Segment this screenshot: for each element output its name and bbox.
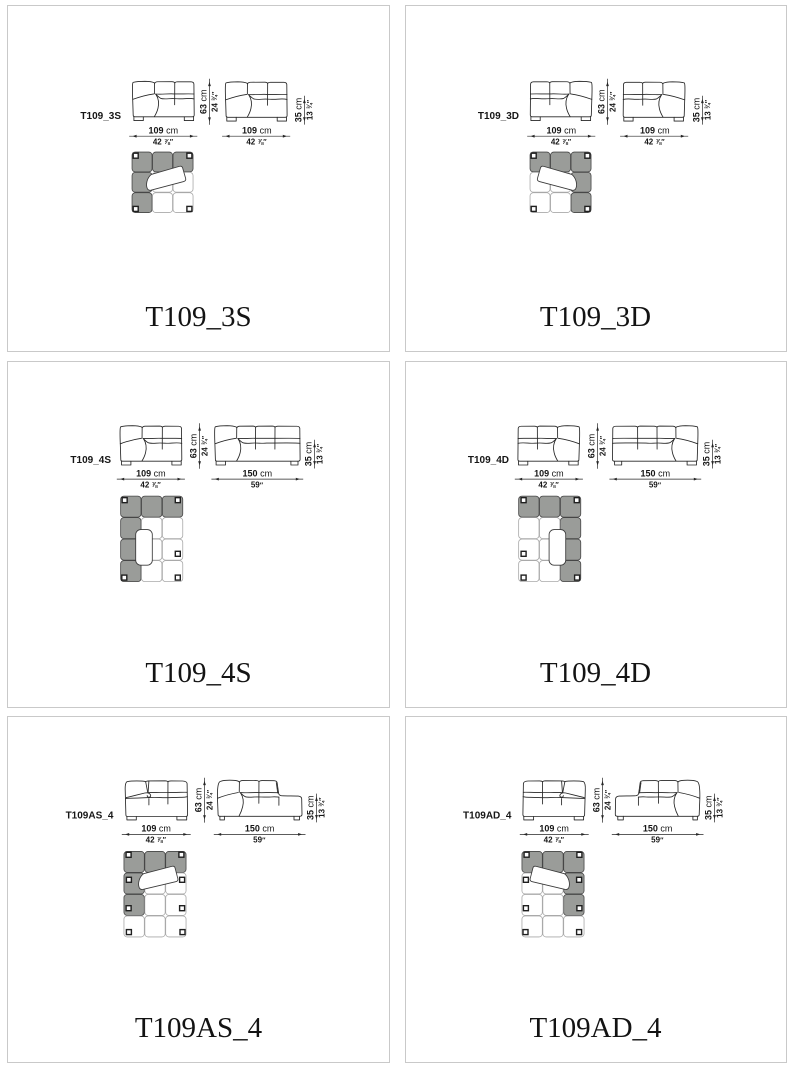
svg-text:35 cm: 35 cm: [293, 98, 303, 123]
svg-text:109 cm: 109 cm: [149, 126, 179, 136]
svg-text:63 cm: 63 cm: [586, 433, 596, 458]
svg-text:T109AS_4: T109AS_4: [66, 810, 114, 821]
svg-text:24 ¾″: 24 ¾″: [201, 435, 210, 456]
svg-text:59″: 59″: [251, 480, 264, 489]
svg-text:13 ¾″: 13 ¾″: [305, 99, 314, 120]
svg-text:24 ¾″: 24 ¾″: [598, 435, 607, 456]
svg-text:63 cm: 63 cm: [596, 90, 606, 115]
svg-text:13 ¾″: 13 ¾″: [703, 99, 712, 120]
svg-text:109 cm: 109 cm: [539, 823, 569, 833]
svg-text:T109_4S: T109_4S: [70, 455, 111, 466]
svg-text:150 cm: 150 cm: [642, 823, 672, 833]
svg-text:24 ¾″: 24 ¾″: [608, 91, 617, 112]
svg-text:109 cm: 109 cm: [534, 468, 564, 478]
svg-text:42 ⅞″: 42 ⅞″: [246, 137, 267, 146]
svg-text:63 cm: 63 cm: [193, 787, 203, 812]
svg-text:109 cm: 109 cm: [640, 126, 670, 136]
svg-text:109 cm: 109 cm: [141, 823, 171, 833]
svg-text:42 ⅞″: 42 ⅞″: [550, 137, 571, 146]
svg-text:35 cm: 35 cm: [304, 441, 314, 466]
svg-text:63 cm: 63 cm: [189, 433, 199, 458]
svg-text:35 cm: 35 cm: [701, 441, 711, 466]
svg-text:109 cm: 109 cm: [242, 126, 272, 136]
svg-text:42 ⅞″: 42 ⅞″: [538, 480, 559, 489]
svg-text:24 ¾″: 24 ¾″: [205, 789, 214, 810]
svg-text:42 ⅞″: 42 ⅞″: [146, 835, 167, 844]
svg-text:24 ¾″: 24 ¾″: [603, 789, 612, 810]
svg-text:63 cm: 63 cm: [198, 90, 208, 115]
svg-text:13 ¾″: 13 ¾″: [713, 443, 722, 464]
svg-text:35 cm: 35 cm: [305, 795, 315, 820]
svg-text:13 ¾″: 13 ¾″: [316, 443, 325, 464]
svg-text:109 cm: 109 cm: [136, 468, 166, 478]
svg-text:150 cm: 150 cm: [243, 468, 273, 478]
svg-text:42 ⅞″: 42 ⅞″: [140, 480, 161, 489]
svg-text:42 ⅞″: 42 ⅞″: [543, 835, 564, 844]
svg-text:T109_4D: T109_4D: [467, 455, 508, 466]
svg-text:35 cm: 35 cm: [691, 98, 701, 123]
svg-text:42 ⅞″: 42 ⅞″: [644, 137, 665, 146]
svg-text:T109_3S: T109_3S: [80, 111, 121, 122]
svg-text:59″: 59″: [648, 480, 661, 489]
svg-text:13 ¾″: 13 ¾″: [715, 797, 724, 818]
svg-text:35 cm: 35 cm: [703, 795, 713, 820]
svg-text:109 cm: 109 cm: [546, 126, 576, 136]
svg-text:42 ⅞″: 42 ⅞″: [153, 137, 174, 146]
svg-text:T109AD_4: T109AD_4: [463, 810, 512, 821]
svg-text:150 cm: 150 cm: [245, 823, 275, 833]
svg-text:63 cm: 63 cm: [591, 787, 601, 812]
svg-text:59″: 59″: [651, 835, 664, 844]
svg-text:59″: 59″: [253, 835, 266, 844]
svg-text:24 ¾″: 24 ¾″: [210, 91, 219, 112]
svg-text:13 ¾″: 13 ¾″: [317, 797, 326, 818]
svg-text:150 cm: 150 cm: [640, 468, 670, 478]
svg-text:T109_3D: T109_3D: [477, 111, 518, 122]
